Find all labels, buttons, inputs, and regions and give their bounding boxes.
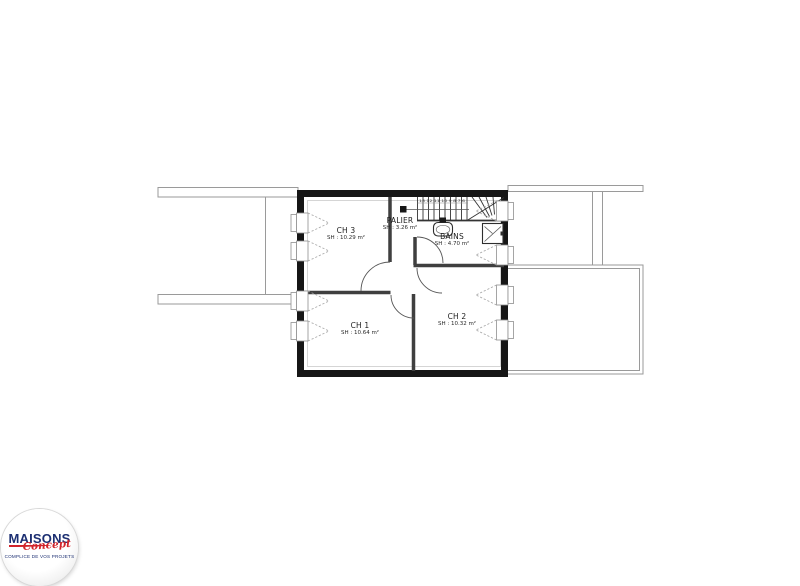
floor-plan-drawing: 13 12 11 10 9 8 7 6 — [0, 0, 800, 566]
room-area: SH : 10.32 m² — [438, 321, 476, 328]
right-roof-bar-top — [508, 186, 643, 192]
room-area: SH : 10.64 m² — [341, 330, 379, 337]
logo-tagline-text: COMPLICE DE VOS PROJETS — [1, 554, 78, 559]
stair-step-numbers: 13 12 11 10 9 8 7 6 — [419, 199, 465, 203]
room-area: SH : 10.29 m² — [327, 235, 365, 242]
room-area: SH : 4.70 m² — [435, 241, 470, 248]
right-roof-leg — [593, 192, 603, 267]
left-roof-bar-bottom — [158, 295, 298, 305]
washbasin-tap — [440, 218, 447, 223]
room-label-ch1: CH 1 SH : 10.64 m² — [341, 322, 379, 337]
garage-roof-outline-outer — [500, 265, 643, 374]
room-name: BAINS — [435, 233, 470, 241]
floor-plan-page: 13 12 11 10 9 8 7 6 — [0, 0, 800, 566]
room-label-ch3: CH 3 SH : 10.29 m² — [327, 227, 365, 242]
room-name: CH 3 — [327, 227, 365, 235]
room-name: CH 2 — [438, 313, 476, 321]
stair-newel-post — [400, 206, 407, 213]
maisons-concept-logo: MAISONS Concept COMPLICE DE VOS PROJETS — [1, 509, 78, 586]
room-label-ch2: CH 2 SH : 10.32 m² — [438, 313, 476, 328]
left-roof-bar-top — [158, 188, 298, 198]
room-name: CH 1 — [341, 322, 379, 330]
room-name: PALIER — [383, 217, 418, 225]
room-label-bains: BAINS SH : 4.70 m² — [435, 233, 470, 248]
room-area: SH : 3.26 m² — [383, 225, 418, 232]
room-label-palier: PALIER SH : 3.26 m² — [383, 217, 418, 232]
shower-mixer — [501, 232, 504, 236]
